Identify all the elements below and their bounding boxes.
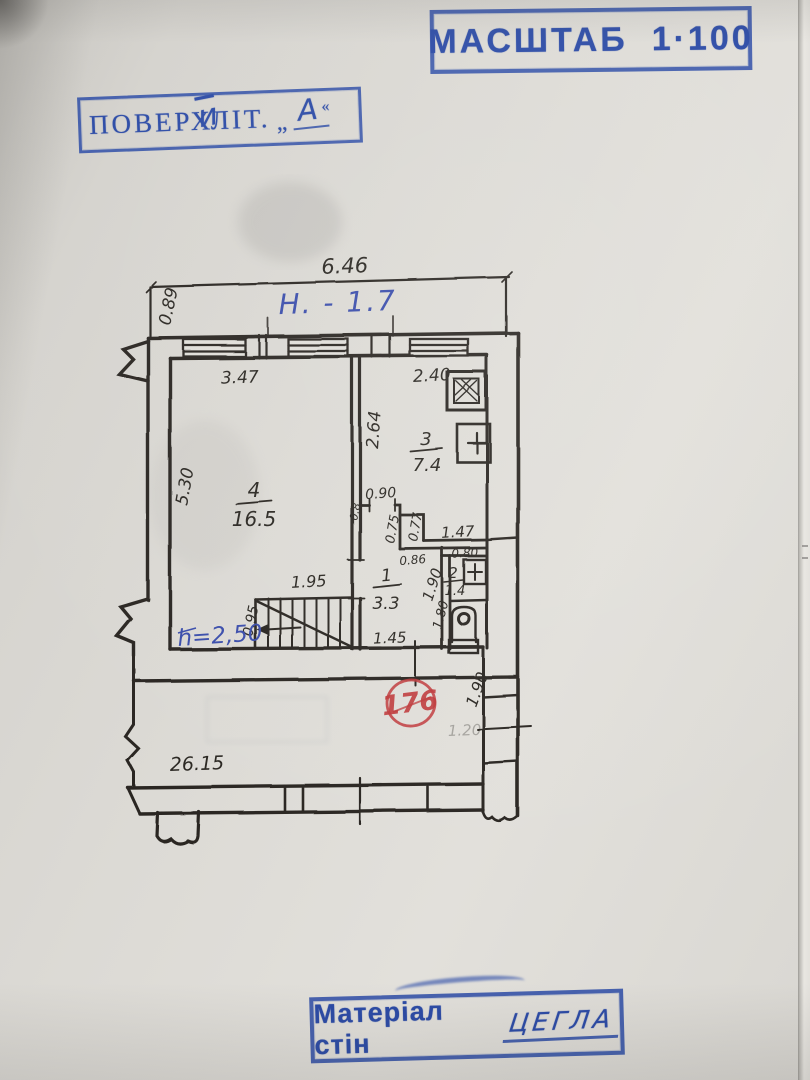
kitchen-sink-icon [457, 424, 490, 462]
floor-stamp-border: ПОВЕРХ и ЛІТ. „ А « [77, 87, 363, 154]
dim-room4-width: 3.47 [221, 367, 260, 388]
dim-stairs-opening: 1.95 [290, 571, 327, 592]
room4-number: 4 [248, 478, 261, 502]
dim-hall-top: 0.86 [399, 552, 427, 568]
left-wall [117, 338, 170, 788]
dim-balcony-side: 0.89 [155, 286, 182, 327]
dim-kitchen-lower: 1.47 [441, 522, 476, 542]
material-stamp-label: Матеріал стін [313, 994, 490, 1061]
floor-plan-drawing: 6.46 0.89 Н. - 1.7 3.47 2.40 5.30 2.64 4… [0, 0, 810, 1080]
material-handwritten-value: ЦЕГЛА [503, 1004, 623, 1043]
registry-number-stamp: 176 [380, 677, 440, 729]
floor-open-quote: „ [276, 109, 291, 137]
room2-number: 2 [448, 564, 458, 582]
room3-area: 7.4 [413, 455, 442, 476]
scale-stamp-border: МАСШТАБ 1·100 [430, 6, 753, 74]
building-bottom-wall [128, 778, 483, 844]
room1-area: 3.3 [372, 594, 399, 614]
scale-stamp-label: МАСШТАБ [428, 20, 628, 61]
dim-hall-door: 0.90 [365, 485, 397, 503]
scanned-floorplan-page: 6.46 0.89 Н. - 1.7 3.47 2.40 5.30 2.64 4… [0, 0, 810, 1080]
room4-area: 16.5 [232, 507, 277, 531]
bath-sink-icon [464, 560, 486, 584]
material-stamp: Матеріал стін ЦЕГЛА [309, 989, 625, 1064]
room1-number: 1 [380, 566, 393, 587]
window-icons [183, 339, 468, 356]
dim-bath-width: 0.80 [451, 545, 479, 560]
pen-height-mark: Н. - 1.7 [278, 284, 397, 321]
floor-stamp: ПОВЕРХ и ЛІТ. „ А « [77, 87, 363, 154]
dim-top-width: 6.46 [321, 253, 369, 279]
bleed-note: 1.20 [448, 721, 482, 740]
stove-icon [447, 372, 486, 410]
dim-kitchen-width: 2.40 [412, 365, 451, 387]
toilet-icon [449, 607, 478, 653]
dim-building-length: 26.15 [169, 752, 224, 776]
dim-kitchen-depth: 2.64 [363, 410, 386, 449]
floor-stamp-label: ПОВЕРХ [89, 105, 214, 141]
page-edge [798, 0, 810, 1080]
dim-hall-bottom: 1.45 [373, 628, 407, 647]
material-stamp-border: Матеріал стін ЦЕГЛА [309, 989, 625, 1064]
edge-mark [802, 545, 808, 547]
room2-area: 1.4 [445, 584, 466, 599]
floor-litera-letter: А [290, 91, 330, 131]
scale-stamp-value: 1·100 [651, 19, 753, 59]
dim-right-wing: 1.90 [462, 669, 492, 709]
edge-mark [802, 557, 808, 559]
scale-stamp: МАСШТАБ 1·100 [430, 6, 753, 74]
room3-number: 3 [420, 429, 431, 450]
staircase [255, 597, 352, 648]
